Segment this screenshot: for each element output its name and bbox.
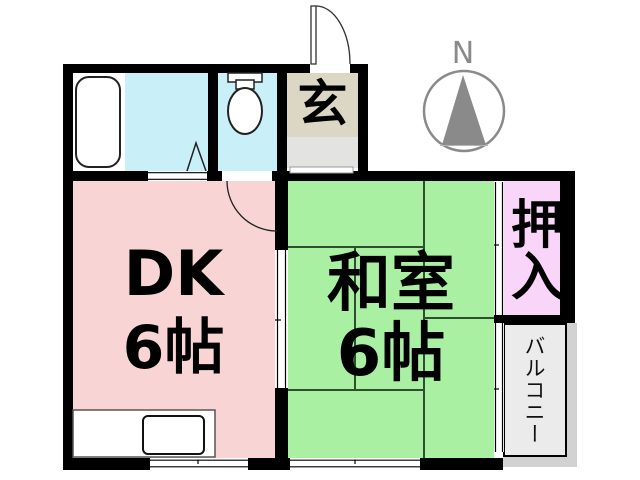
north-label: N [438,36,488,71]
wall-bath-toilet [208,64,218,181]
wall-genkan-right [358,64,368,181]
dk-room-label: DK [72,243,275,305]
north-arrow-icon [424,71,504,151]
floorplan-canvas: DK 6帖 和室 6帖 玄 押入 バルコニー N [0,0,640,480]
genkan-label: 玄 [287,79,358,129]
balcony-label: バルコニー [503,327,565,453]
oshiire-closet-label: 押入 [504,186,560,312]
bathroom-sliding-door [148,172,207,180]
entrance-door-swing-icon [310,6,350,73]
wall-mid-b [207,171,222,181]
wall-bottom-a [63,458,150,470]
wall-mid-c [272,171,575,181]
washitsu-window [290,460,420,468]
wall-oshiire-bottom [494,315,575,323]
wall-toilet-genkan [277,64,287,181]
bathtub-area [73,73,125,171]
genkan-step-area [287,137,358,168]
wall-bottom-c [420,458,503,470]
wall-dk-washitsu [275,181,288,458]
wall-top-a [63,64,310,73]
washitsu-room-size: 6帖 [288,322,494,386]
washitsu-room-label: 和室 [288,252,494,316]
dk-window [150,460,248,468]
wall-bottom-b [248,458,290,470]
wall-mid-a [63,171,148,181]
dk-room-size: 6帖 [72,318,275,378]
toilet-room-floor [218,73,277,171]
